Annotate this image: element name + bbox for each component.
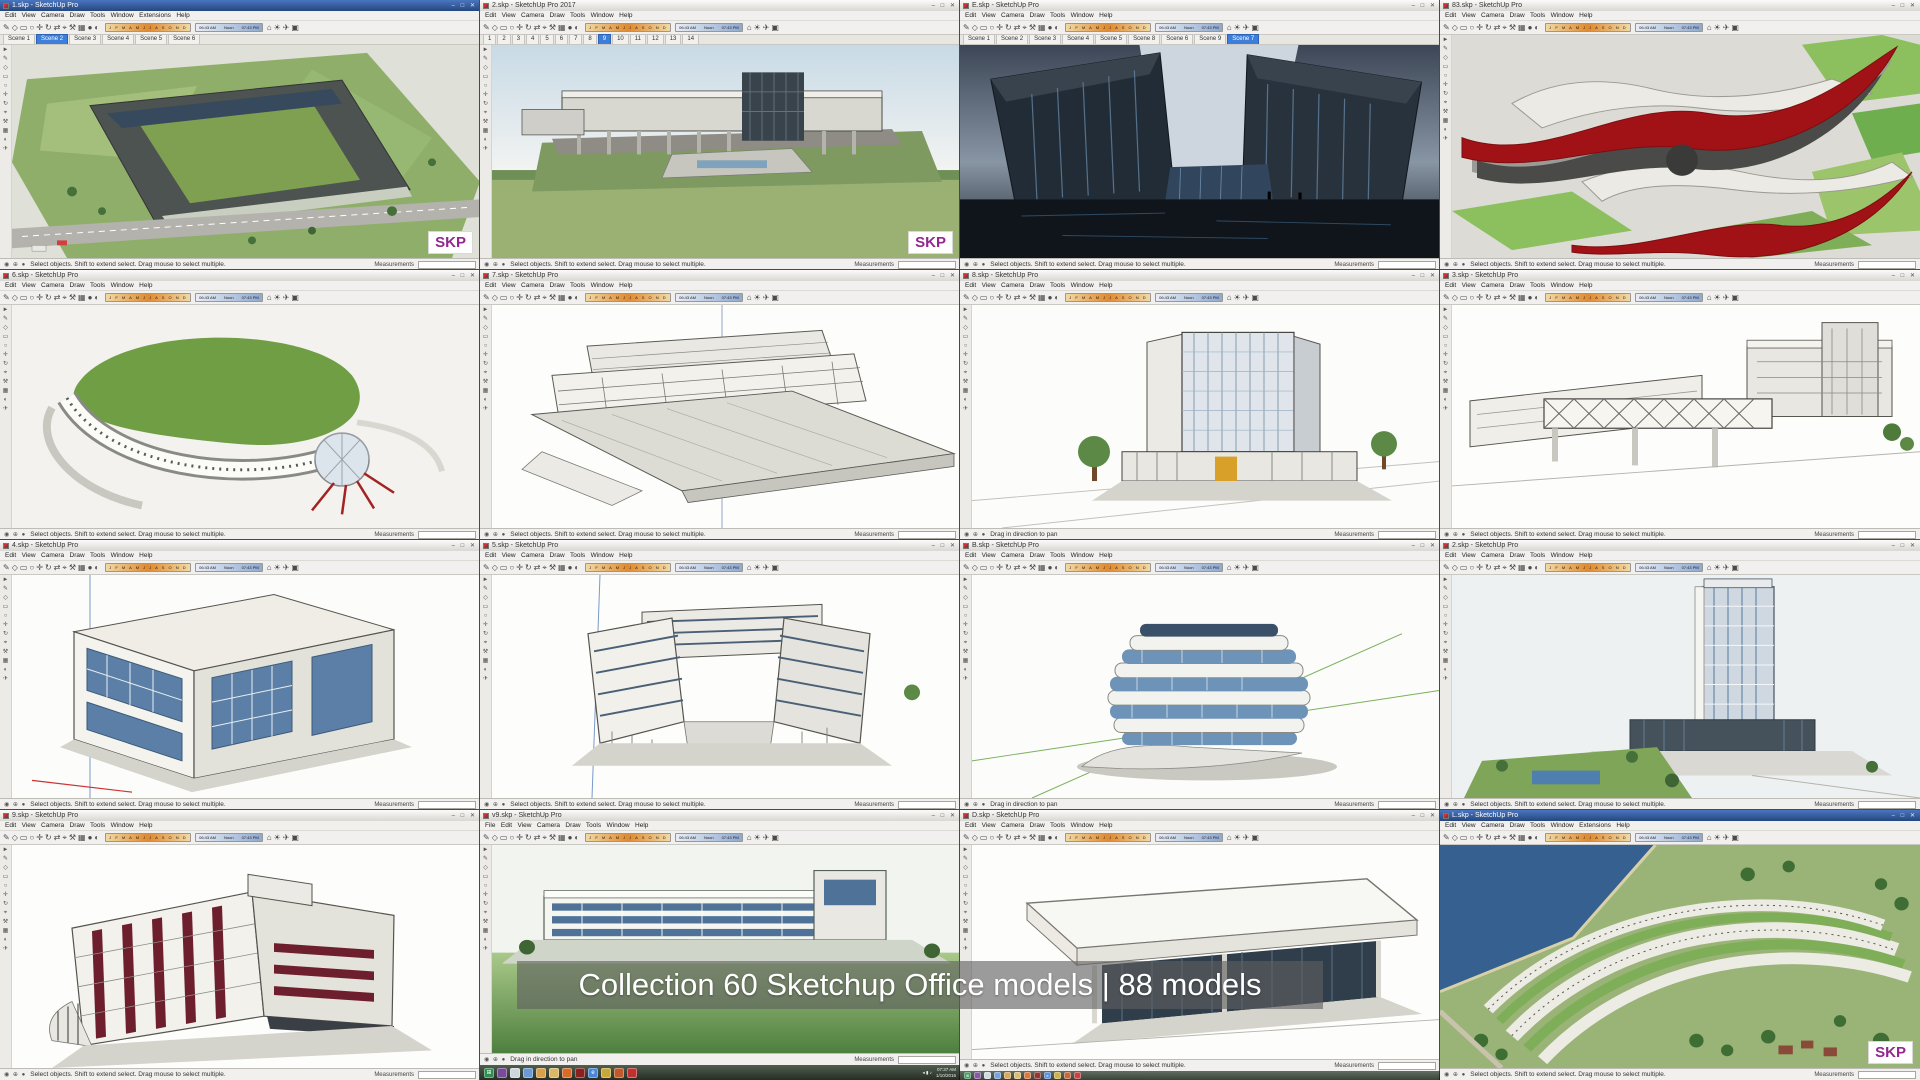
title-bar[interactable]: 83.skp - SketchUp Pro– □ ✕ xyxy=(1440,0,1920,11)
tab[interactable]: 7 xyxy=(569,34,582,44)
toolbar[interactable]: ✎◇▭○✛↻⇄⌖⚒▦●◐J F M A M J J A S O N D06:43… xyxy=(960,21,1440,35)
model-tower-podium[interactable] xyxy=(1452,575,1920,798)
sketchup-window-15: D.skp - SketchUp Pro– □ ✕ Edit View Came… xyxy=(960,810,1440,1080)
window-title: 83.skp - SketchUp Pro xyxy=(1452,2,1522,9)
toolbar-icons-right[interactable]: ⌂☀✈▣ xyxy=(267,833,301,842)
tool-palette[interactable]: ► ✎ ◇ ▭ ○ ✛ ↻ ⌖ ⚒ ▦ ◐ ✈ xyxy=(0,305,12,528)
toolbar-icons-right[interactable]: ⌂☀✈▣ xyxy=(1707,833,1741,842)
model-layered-slabs[interactable] xyxy=(492,305,960,528)
tab[interactable]: Scene 5 xyxy=(1095,34,1127,44)
window-controls[interactable]: – □ ✕ xyxy=(1892,542,1917,549)
toolbar-icons-right[interactable]: ⌂☀✈▣ xyxy=(747,563,781,572)
title-bar[interactable]: L.skp - SketchUp Pro– □ ✕ xyxy=(1440,810,1920,821)
toolbar-icons-right[interactable]: ⌂☀✈▣ xyxy=(747,23,781,32)
title-bar[interactable]: 2.skp - SketchUp Pro– □ ✕ xyxy=(1440,540,1920,551)
window-controls[interactable]: – □ ✕ xyxy=(1892,272,1917,279)
chrome-icon[interactable] xyxy=(1004,1072,1011,1079)
toolbar[interactable]: ✎◇▭○✛↻⇄⌖⚒▦●◐J F M A M J J A S O N D06:43… xyxy=(1440,561,1920,575)
title-bar[interactable]: 7.skp - SketchUp Pro– □ ✕ xyxy=(480,270,960,281)
tool-palette[interactable]: ► ✎ ◇ ▭ ○ ✛ ↻ ⌖ ⚒ ▦ ◐ ✈ xyxy=(1440,35,1452,258)
toolbar-icons-right[interactable]: ⌂☀✈▣ xyxy=(267,563,301,572)
tab[interactable]: 14 xyxy=(682,34,699,44)
tab[interactable]: 10 xyxy=(612,34,629,44)
viewport[interactable]: ► ✎ ◇ ▭ ○ ✛ ↻ ⌖ ⚒ ▦ ◐ ✈ xyxy=(1440,305,1920,528)
viewport[interactable]: ► ✎ ◇ ▭ ○ ✛ ↻ ⌖ ⚒ ▦ ◐ ✈ xyxy=(1440,575,1920,798)
toolbar[interactable]: ✎◇▭○✛↻⇄⌖⚒▦●◐J F M A M J J A S O N D06:43… xyxy=(0,21,480,35)
window-controls[interactable]: – □ ✕ xyxy=(932,542,957,549)
menu-bar[interactable]: Edit View Camera Draw Tools Window Help xyxy=(480,11,960,21)
window-title: E.skp - SketchUp Pro xyxy=(972,2,1039,9)
collection-caption: Collection 60 Sketchup Office models | 8… xyxy=(517,961,1323,1009)
toolbar-icons-right[interactable]: ⌂☀✈▣ xyxy=(267,293,301,302)
app-icon xyxy=(3,3,9,9)
shadow-time-slider[interactable]: 06:43 AMNoon07:43 PM xyxy=(195,563,263,572)
viewport[interactable]: ► ✎ ◇ ▭ ○ ✛ ↻ ⌖ ⚒ ▦ ◐ ✈ xyxy=(480,305,960,528)
shadow-time-slider[interactable]: 06:43 AMNoon07:43 PM xyxy=(1635,293,1703,302)
toolbar[interactable]: ✎◇▭○✛↻⇄⌖⚒▦●◐J F M A M J J A S O N D06:43… xyxy=(960,291,1440,305)
window-controls[interactable]: – □ ✕ xyxy=(452,2,477,9)
model-terraced-aerial[interactable] xyxy=(1440,845,1920,1068)
measurements-box[interactable] xyxy=(898,261,956,269)
window-controls[interactable]: – □ ✕ xyxy=(1412,2,1437,9)
status-icons[interactable]: ◉ ⊕ ● xyxy=(4,801,26,808)
model-blue-glass-block[interactable] xyxy=(12,575,480,798)
status-icons[interactable]: ◉ ⊕ ● xyxy=(964,801,986,808)
measurements-box[interactable] xyxy=(1378,801,1436,809)
title-bar[interactable]: 3.skp - SketchUp Pro– □ ✕ xyxy=(1440,270,1920,281)
tab[interactable]: 1 xyxy=(483,34,496,44)
viewport[interactable]: ► ✎ ◇ ▭ ○ ✛ ↻ ⌖ ⚒ ▦ ◐ ✈ xyxy=(0,845,480,1068)
model-glass-slab-podium[interactable] xyxy=(972,305,1440,528)
status-text: Select objects. Shift to extend select. … xyxy=(1470,531,1665,538)
measurements-label: Measurements xyxy=(1334,262,1374,268)
tab[interactable]: Scene 6 xyxy=(1161,34,1193,44)
toolbar[interactable]: ✎◇▭○✛↻⇄⌖⚒▦●◐J F M A M J J A S O N D06:43… xyxy=(0,831,480,845)
title-bar[interactable]: v9.skp - SketchUp Pro– □ ✕ xyxy=(480,810,960,821)
toolbar-icons-right[interactable]: ⌂☀✈▣ xyxy=(1227,833,1261,842)
tool-palette[interactable]: ► ✎ ◇ ▭ ○ ✛ ↻ ⌖ ⚒ ▦ ◐ ✈ xyxy=(960,845,972,1059)
toolbar-icons[interactable]: ✎◇▭○✛↻⇄⌖⚒▦●◐ xyxy=(483,293,581,303)
model-redstripe-building[interactable] xyxy=(12,845,480,1068)
toolbar[interactable]: ✎◇▭○✛↻⇄⌖⚒▦●◐J F M A M J J A S O N D06:43… xyxy=(1440,831,1920,845)
tool-palette[interactable]: ► ✎ ◇ ▭ ○ ✛ ↻ ⌖ ⚒ ▦ ◐ ✈ xyxy=(960,305,972,528)
tab[interactable]: 13 xyxy=(665,34,682,44)
tool-palette[interactable]: ► ✎ ◇ ▭ ○ ✛ ↻ ⌖ ⚒ ▦ ◐ ✈ xyxy=(480,305,492,528)
model-concrete-office[interactable] xyxy=(492,45,960,258)
status-text: Select objects. Shift to extend select. … xyxy=(510,261,705,268)
toolbar-icons[interactable]: ✎◇▭○✛↻⇄⌖⚒▦●◐ xyxy=(483,563,581,573)
tab[interactable]: Scene 2 xyxy=(996,34,1028,44)
app-icon xyxy=(963,543,969,549)
title-bar[interactable]: B.skp - SketchUp Pro– □ ✕ xyxy=(960,540,1440,551)
title-bar[interactable]: E.skp - SketchUp Pro– □ ✕ xyxy=(960,0,1440,11)
model-low-office[interactable] xyxy=(492,845,960,1053)
measurements-label: Measurements xyxy=(1334,1063,1374,1069)
status-bar: ◉ ⊕ ●Select objects. Shift to extend sel… xyxy=(1440,798,1920,810)
title-bar[interactable]: 5.skp - SketchUp Pro– □ ✕ xyxy=(480,540,960,551)
toolbar-icons-right[interactable]: ⌂☀✈▣ xyxy=(1707,563,1741,572)
toolbar-icons[interactable]: ✎◇▭○✛↻⇄⌖⚒▦●◐ xyxy=(1443,23,1541,33)
toolbar[interactable]: ✎◇▭○✛↻⇄⌖⚒▦●◐J F M A M J J A S O N D06:43… xyxy=(480,561,960,575)
status-icons[interactable]: ◉ ⊕ ● xyxy=(1444,531,1466,538)
status-icons[interactable]: ◉ ⊕ ● xyxy=(1444,801,1466,808)
status-icons[interactable]: ◉ ⊕ ● xyxy=(484,801,506,808)
app-icon xyxy=(1443,3,1449,9)
menu-bar[interactable]: Edit View Camera Draw Tools Window Help xyxy=(960,11,1440,21)
status-icons[interactable]: ◉ ⊕ ● xyxy=(1444,261,1466,268)
shadow-time-slider[interactable]: 06:43 AMNoon07:43 PM xyxy=(675,563,743,572)
status-icons[interactable]: ◉ ⊕ ● xyxy=(4,531,26,538)
shadow-time-slider[interactable]: 06:43 AMNoon07:43 PM xyxy=(675,293,743,302)
measurements-box[interactable] xyxy=(418,1071,476,1079)
shadow-time-slider[interactable]: 06:43 AMNoon07:43 PM xyxy=(1635,833,1703,842)
menu-bar[interactable]: Edit View Camera Draw Tools Window Help xyxy=(960,821,1440,831)
menu-bar[interactable]: Edit View Camera Draw Tools Window Help xyxy=(960,551,1440,561)
toolbar-icons-right[interactable]: ⌂☀✈▣ xyxy=(1227,293,1261,302)
office-icon[interactable] xyxy=(1054,1072,1061,1079)
toolbar[interactable]: ✎◇▭○✛↻⇄⌖⚒▦●◐J F M A M J J A S O N D06:43… xyxy=(0,561,480,575)
tab[interactable]: Scene 5 xyxy=(135,34,167,44)
tab[interactable]: Scene 4 xyxy=(1062,34,1094,44)
ie-icon[interactable]: e xyxy=(588,1068,598,1078)
window-controls[interactable]: – □ ✕ xyxy=(452,812,477,819)
tool-palette[interactable]: ► ✎ ◇ ▭ ○ ✛ ↻ ⌖ ⚒ ▦ ◐ ✈ xyxy=(480,45,492,258)
viewport[interactable] xyxy=(1440,845,1920,1068)
photoshop-icon[interactable] xyxy=(575,1068,585,1078)
tab[interactable]: Scene 6 xyxy=(168,34,200,44)
measurements-box[interactable] xyxy=(1858,1071,1916,1079)
title-bar[interactable]: 8.skp - SketchUp Pro– □ ✕ xyxy=(960,270,1440,281)
measurements-box[interactable] xyxy=(1858,531,1916,539)
status-text: Drag in direction to pan xyxy=(990,801,1057,808)
model-curved-tower[interactable] xyxy=(972,575,1440,798)
toolbar-icons[interactable]: ✎◇▭○✛↻⇄⌖⚒▦●◐ xyxy=(483,23,581,33)
shadow-date-slider[interactable]: J F M A M J J A S O N D xyxy=(105,23,191,32)
toolbar[interactable]: ✎◇▭○✛↻⇄⌖⚒▦●◐J F M A M J J A S O N D06:43… xyxy=(1440,291,1920,305)
status-bar: ◉ ⊕ ●Select objects. Shift to extend sel… xyxy=(0,258,480,270)
shadow-time-slider[interactable]: 06:43 AMNoon07:43 PM xyxy=(195,293,263,302)
window-controls[interactable]: – □ ✕ xyxy=(452,542,477,549)
viewport[interactable]: ► ✎ ◇ ▭ ○ ✛ ↻ ⌖ ⚒ ▦ ◐ ✈ xyxy=(960,845,1440,1059)
shadow-date-slider[interactable]: J F M A M J J A S O N D xyxy=(585,23,671,32)
app-icon xyxy=(3,543,9,549)
shadow-time-slider[interactable]: 06:43 AMNoon07:43 PM xyxy=(195,833,263,842)
viewport[interactable]: ► ✎ ◇ ▭ ○ ✛ ↻ ⌖ ⚒ ▦ ◐ ✈ xyxy=(0,575,480,798)
menu-bar[interactable]: Edit View Camera Draw Tools Window Help xyxy=(1440,281,1920,291)
firefox-icon[interactable] xyxy=(1024,1072,1031,1079)
window-controls[interactable]: – □ ✕ xyxy=(932,2,957,9)
shadow-time-slider[interactable]: 06:43 AMNoon07:43 PM xyxy=(1635,563,1703,572)
tab[interactable]: Scene 8 xyxy=(1128,34,1160,44)
toolbar-icons[interactable]: ✎◇▭○✛↻⇄⌖⚒▦●◐ xyxy=(3,563,101,573)
shadow-date-slider[interactable]: J F M A M J J A S O N D xyxy=(105,833,191,842)
measurements-box[interactable] xyxy=(1378,261,1436,269)
measurements-label: Measurements xyxy=(374,532,414,538)
status-bar: ◉ ⊕ ●Select objects. Shift to extend sel… xyxy=(1440,528,1920,540)
tool-palette[interactable]: ► ✎ ◇ ▭ ○ ✛ ↻ ⌖ ⚒ ▦ ◐ ✈ xyxy=(480,845,492,1053)
toolbar-icons[interactable]: ✎◇▭○✛↻⇄⌖⚒▦●◐ xyxy=(963,293,1061,303)
title-bar[interactable]: 2.skp - SketchUp Pro 2017– □ ✕ xyxy=(480,0,960,11)
model-ushape-slab[interactable] xyxy=(492,575,960,798)
shadow-date-slider[interactable]: J F M A M J J A S O N D xyxy=(585,293,671,302)
toolbar-icons[interactable]: ✎◇▭○✛↻⇄⌖⚒▦●◐ xyxy=(963,833,1061,843)
tab[interactable]: 5 xyxy=(540,34,553,44)
tab[interactable]: Scene 1 xyxy=(3,34,35,44)
measurements-label: Measurements xyxy=(1814,1072,1854,1078)
title-bar[interactable]: 1.skp - SketchUp Pro– □ ✕ xyxy=(0,0,480,11)
title-bar[interactable]: D.skp - SketchUp Pro– □ ✕ xyxy=(960,810,1440,821)
measurements-box[interactable] xyxy=(1378,531,1436,539)
viewport[interactable]: ► ✎ ◇ ▭ ○ ✛ ↻ ⌖ ⚒ ▦ ◐ ✈ xyxy=(480,575,960,798)
scene-tabs: Scene 1Scene 2Scene 3Scene 4Scene 5Scene… xyxy=(960,35,1440,45)
paint-icon[interactable] xyxy=(523,1068,533,1078)
viewport[interactable]: ► ✎ ◇ ▭ ○ ✛ ↻ ⌖ ⚒ ▦ ◐ ✈ xyxy=(480,845,960,1053)
toolbar-icons-right[interactable]: ⌂☀✈▣ xyxy=(1707,293,1741,302)
toolbar-icons[interactable]: ✎◇▭○✛↻⇄⌖⚒▦●◐ xyxy=(1443,833,1541,843)
toolbar[interactable]: ✎◇▭○✛↻⇄⌖⚒▦●◐J F M A M J J A S O N D06:43… xyxy=(1440,21,1920,35)
status-text: Select objects. Shift to extend select. … xyxy=(1470,261,1665,268)
tool-palette[interactable]: ► ✎ ◇ ▭ ○ ✛ ↻ ⌖ ⚒ ▦ ◐ ✈ xyxy=(1440,575,1452,798)
model-bridge-complex[interactable] xyxy=(1452,305,1920,528)
toolbar[interactable]: ✎◇▭○✛↻⇄⌖⚒▦●◐J F M A M J J A S O N D06:43… xyxy=(960,561,1440,575)
measurements-box[interactable] xyxy=(898,1056,956,1064)
shadow-time-slider[interactable]: 06:43 AMNoon07:43 PM xyxy=(675,833,743,842)
shadow-date-slider[interactable]: J F M A M J J A S O N D xyxy=(1545,293,1631,302)
menu-bar[interactable]: Edit View Camera Draw Tools Window Help xyxy=(1440,551,1920,561)
toolbar[interactable]: ✎◇▭○✛↻⇄⌖⚒▦●◐J F M A M J J A S O N D06:43… xyxy=(480,21,960,35)
paint-icon[interactable] xyxy=(994,1072,1001,1079)
menu-bar[interactable]: Edit View Camera Draw Tools Window Help xyxy=(960,281,1440,291)
tab[interactable]: 8 xyxy=(583,34,596,44)
tool-palette[interactable]: ► ✎ ◇ ▭ ○ ✛ ↻ ⌖ ⚒ ▦ ◐ ✈ xyxy=(480,575,492,798)
tab[interactable]: 6 xyxy=(555,34,568,44)
viewport[interactable]: ► ✎ ◇ ▭ ○ ✛ ↻ ⌖ ⚒ ▦ ◐ ✈ xyxy=(1440,35,1920,258)
status-icons[interactable]: ◉ ⊕ ● xyxy=(964,531,986,538)
app-icon xyxy=(483,3,489,9)
tab[interactable]: 11 xyxy=(630,34,646,44)
menu-bar[interactable]: Edit View Camera Draw Tools Window Help xyxy=(480,551,960,561)
status-text: Select objects. Shift to extend select. … xyxy=(1470,1071,1665,1078)
start-button[interactable]: ⊞ xyxy=(964,1072,971,1079)
viewport[interactable]: ► ✎ ◇ ▭ ○ ✛ ↻ ⌖ ⚒ ▦ ◐ ✈ xyxy=(0,305,480,528)
tab[interactable]: 4 xyxy=(526,34,539,44)
chrome-icon[interactable] xyxy=(536,1068,546,1078)
window-controls[interactable]: – □ ✕ xyxy=(932,812,957,819)
media-player-icon[interactable] xyxy=(974,1072,981,1079)
measurements-box[interactable] xyxy=(898,801,956,809)
tab[interactable]: Scene 4 xyxy=(102,34,134,44)
toolbar-icons-right[interactable]: ⌂☀✈▣ xyxy=(747,833,781,842)
window-controls[interactable]: – □ ✕ xyxy=(1412,542,1437,549)
window-controls[interactable]: – □ ✕ xyxy=(1412,812,1437,819)
status-icons[interactable]: ◉ ⊕ ● xyxy=(4,261,26,268)
window-title: D.skp - SketchUp Pro xyxy=(972,812,1039,819)
toolbar[interactable]: ✎◇▭○✛↻⇄⌖⚒▦●◐J F M A M J J A S O N D06:43… xyxy=(0,291,480,305)
tab[interactable]: 12 xyxy=(647,34,664,44)
tab[interactable]: Scene 2 xyxy=(36,34,68,44)
folder-icon[interactable] xyxy=(549,1068,559,1078)
status-bar: ◉ ⊕ ●Select objects. Shift to extend sel… xyxy=(0,798,480,810)
measurements-box[interactable] xyxy=(1378,1062,1436,1070)
tab[interactable]: 3 xyxy=(512,34,525,44)
shadow-date-slider[interactable]: J F M A M J J A S O N D xyxy=(1545,563,1631,572)
status-icons[interactable]: ◉ ⊕ ● xyxy=(484,1056,506,1063)
toolbar-icons[interactable]: ✎◇▭○✛↻⇄⌖⚒▦●◐ xyxy=(483,833,581,843)
toolbar-icons-right[interactable]: ⌂☀✈▣ xyxy=(1707,23,1741,32)
window-title: 6.skp - SketchUp Pro xyxy=(12,272,78,279)
shadow-time-slider[interactable]: 06:43 AMNoon07:43 PM xyxy=(1155,833,1223,842)
toolbar[interactable]: ✎◇▭○✛↻⇄⌖⚒▦●◐J F M A M J J A S O N D06:43… xyxy=(480,831,960,845)
shadow-time-slider[interactable]: 06:43 AMNoon07:43 PM xyxy=(195,23,263,32)
viewport[interactable] xyxy=(960,45,1440,258)
measurements-box[interactable] xyxy=(1858,801,1916,809)
shadow-date-slider[interactable]: J F M A M J J A S O N D xyxy=(1545,23,1631,32)
model-dark-towers[interactable] xyxy=(960,45,1440,258)
start-button[interactable]: ⊞ xyxy=(484,1068,494,1078)
window-controls[interactable]: – □ ✕ xyxy=(452,272,477,279)
tool-palette[interactable]: ► ✎ ◇ ▭ ○ ✛ ↻ ⌖ ⚒ ▦ ◐ ✈ xyxy=(0,575,12,798)
window-controls[interactable]: – □ ✕ xyxy=(932,272,957,279)
toolbar-icons[interactable]: ✎◇▭○✛↻⇄⌖⚒▦●◐ xyxy=(1443,293,1541,303)
shadow-date-slider[interactable]: J F M A M J J A S O N D xyxy=(105,293,191,302)
shadow-time-slider[interactable]: 06:43 AMNoon07:43 PM xyxy=(1635,23,1703,32)
window-title: L.skp - SketchUp Pro xyxy=(1452,812,1518,819)
window-controls[interactable]: – □ ✕ xyxy=(1892,812,1917,819)
shadow-date-slider[interactable]: J F M A M J J A S O N D xyxy=(1065,833,1151,842)
shadow-time-slider[interactable]: 06:43 AMNoon07:43 PM xyxy=(675,23,743,32)
viewport[interactable]: ► ✎ ◇ ▭ ○ ✛ ↻ ⌖ ⚒ ▦ ◐ ✈ xyxy=(0,45,480,258)
menu-bar[interactable]: Edit View Camera Draw Tools Window Help xyxy=(0,551,480,561)
screenshot-collage: 1.skp - SketchUp Pro– □ ✕ Edit View Came… xyxy=(0,0,1920,1080)
status-icons[interactable]: ◉ ⊕ ● xyxy=(964,261,986,268)
toolbar-icons-right[interactable]: ⌂☀✈▣ xyxy=(1227,563,1261,572)
tab[interactable]: 9 xyxy=(598,34,611,44)
powerpoint-icon[interactable] xyxy=(614,1068,624,1078)
shadow-date-slider[interactable]: J F M A M J J A S O N D xyxy=(1065,293,1151,302)
notepad-icon[interactable] xyxy=(510,1068,520,1078)
menu-bar[interactable]: Edit View Camera Draw Tools Window Exten… xyxy=(0,11,480,21)
toolbar-icons[interactable]: ✎◇▭○✛↻⇄⌖⚒▦●◐ xyxy=(1443,563,1541,573)
shadow-time-slider[interactable]: 06:43 AMNoon07:43 PM xyxy=(1155,293,1223,302)
toolbar-icons-right[interactable]: ⌂☀✈▣ xyxy=(747,293,781,302)
tray-clock[interactable]: 07:37 AM1/10/2016 xyxy=(936,1067,956,1077)
folder-icon[interactable] xyxy=(1014,1072,1021,1079)
tool-palette[interactable]: ► ✎ ◇ ▭ ○ ✛ ↻ ⌖ ⚒ ▦ ◐ ✈ xyxy=(0,45,12,258)
viewport[interactable]: ► ✎ ◇ ▭ ○ ✛ ↻ ⌖ ⚒ ▦ ◐ ✈ xyxy=(960,305,1440,528)
tool-palette[interactable]: ► ✎ ◇ ▭ ○ ✛ ↻ ⌖ ⚒ ▦ ◐ ✈ xyxy=(0,845,12,1068)
window-controls[interactable]: – □ ✕ xyxy=(1412,272,1437,279)
sketchup-window-3: E.skp - SketchUp Pro– □ ✕ Edit View Came… xyxy=(960,0,1440,270)
shadow-date-slider[interactable]: J F M A M J J A S O N D xyxy=(105,563,191,572)
model-red-ribbons[interactable] xyxy=(1452,35,1920,258)
pdf-icon[interactable] xyxy=(627,1068,637,1078)
powerpoint-icon[interactable] xyxy=(1064,1072,1071,1079)
firefox-icon[interactable] xyxy=(562,1068,572,1078)
tool-palette[interactable]: ► ✎ ◇ ▭ ○ ✛ ↻ ⌖ ⚒ ▦ ◐ ✈ xyxy=(960,575,972,798)
status-icons[interactable]: ◉ ⊕ ● xyxy=(484,261,506,268)
model-flat-roof-hall[interactable] xyxy=(972,845,1440,1059)
ie-icon[interactable]: e xyxy=(1044,1072,1051,1079)
sketchup-window-5: 6.skp - SketchUp Pro– □ ✕ Edit View Came… xyxy=(0,270,480,540)
menu-bar[interactable]: File Edit View Camera Draw Tools Window … xyxy=(480,821,960,831)
system-tray[interactable]: ◂ ▮ ♪07:37 AM1/10/2016 xyxy=(922,1067,956,1077)
office-icon[interactable] xyxy=(601,1068,611,1078)
tool-palette[interactable]: ► ✎ ◇ ▭ ○ ✛ ↻ ⌖ ⚒ ▦ ◐ ✈ xyxy=(1440,305,1452,528)
tab[interactable]: Scene 7 xyxy=(1227,34,1259,44)
measurements-box[interactable] xyxy=(418,261,476,269)
title-bar[interactable]: 4.skp - SketchUp Pro– □ ✕ xyxy=(0,540,480,551)
measurements-box[interactable] xyxy=(898,531,956,539)
pdf-icon[interactable] xyxy=(1074,1072,1081,1079)
toolbar-icons-right[interactable]: ⌂☀✈▣ xyxy=(267,23,301,32)
tab[interactable]: Scene 1 xyxy=(963,34,995,44)
window-title: 1.skp - SketchUp Pro xyxy=(12,2,78,9)
window-controls[interactable]: – □ ✕ xyxy=(1892,2,1917,9)
menu-bar[interactable]: Edit View Camera Draw Tools Window Help xyxy=(1440,11,1920,21)
model-crescent-dome[interactable] xyxy=(12,305,480,528)
viewport[interactable]: ► ✎ ◇ ▭ ○ ✛ ↻ ⌖ ⚒ ▦ ◐ ✈ xyxy=(960,575,1440,798)
window-title: 8.skp - SketchUp Pro xyxy=(972,272,1038,279)
tab[interactable]: Scene 9 xyxy=(1194,34,1226,44)
model-aerial-courtyard[interactable] xyxy=(12,45,480,258)
menu-bar[interactable]: Edit View Camera Draw Tools Window Exten… xyxy=(1440,821,1920,831)
toolbar-icons[interactable]: ✎◇▭○✛↻⇄⌖⚒▦●◐ xyxy=(963,23,1061,33)
status-icons[interactable]: ◉ ⊕ ● xyxy=(4,1071,26,1078)
measurements-box[interactable] xyxy=(418,801,476,809)
photoshop-icon[interactable] xyxy=(1034,1072,1041,1079)
sketchup-window-12: 2.skp - SketchUp Pro– □ ✕ Edit View Came… xyxy=(1440,540,1920,810)
notepad-icon[interactable] xyxy=(984,1072,991,1079)
measurements-label: Measurements xyxy=(374,1072,414,1078)
title-bar[interactable]: 9.skp - SketchUp Pro– □ ✕ xyxy=(0,810,480,821)
status-bar: ◉ ⊕ ●Drag in direction to panMeasurement… xyxy=(480,1053,960,1065)
tab[interactable]: Scene 3 xyxy=(69,34,101,44)
shadow-date-slider[interactable]: J F M A M J J A S O N D xyxy=(1065,563,1151,572)
window-title: B.skp - SketchUp Pro xyxy=(972,542,1039,549)
status-icons[interactable]: ◉ ⊕ ● xyxy=(484,531,506,538)
shadow-date-slider[interactable]: J F M A M J J A S O N D xyxy=(585,563,671,572)
menu-bar[interactable]: Edit View Camera Draw Tools Window Help xyxy=(0,281,480,291)
toolbar-icons[interactable]: ✎◇▭○✛↻⇄⌖⚒▦●◐ xyxy=(3,23,101,33)
shadow-date-slider[interactable]: J F M A M J J A S O N D xyxy=(1545,833,1631,842)
status-icons[interactable]: ◉ ⊕ ● xyxy=(964,1062,986,1069)
shadow-time-slider[interactable]: 06:43 AMNoon07:43 PM xyxy=(1155,23,1223,32)
title-bar[interactable]: 6.skp - SketchUp Pro– □ ✕ xyxy=(0,270,480,281)
menu-bar[interactable]: Edit View Camera Draw Tools Window Help xyxy=(480,281,960,291)
measurements-box[interactable] xyxy=(418,531,476,539)
toolbar[interactable]: ✎◇▭○✛↻⇄⌖⚒▦●◐J F M A M J J A S O N D06:43… xyxy=(960,831,1440,845)
status-icons[interactable]: ◉ ⊕ ● xyxy=(1444,1071,1466,1078)
toolbar-icons[interactable]: ✎◇▭○✛↻⇄⌖⚒▦●◐ xyxy=(963,563,1061,573)
menu-bar[interactable]: Edit View Camera Draw Tools Window Help xyxy=(0,821,480,831)
tray-icons[interactable]: ◂ ▮ ♪ xyxy=(922,1070,932,1076)
viewport[interactable]: ► ✎ ◇ ▭ ○ ✛ ↻ ⌖ ⚒ ▦ ◐ ✈ xyxy=(480,45,960,258)
shadow-time-slider[interactable]: 06:43 AMNoon07:43 PM xyxy=(1155,563,1223,572)
toolbar-icons[interactable]: ✎◇▭○✛↻⇄⌖⚒▦●◐ xyxy=(3,293,101,303)
measurements-label: Measurements xyxy=(374,802,414,808)
tab[interactable]: Scene 3 xyxy=(1029,34,1061,44)
shadow-date-slider[interactable]: J F M A M J J A S O N D xyxy=(585,833,671,842)
toolbar-icons-right[interactable]: ⌂☀✈▣ xyxy=(1227,23,1261,32)
window-title: v9.skp - SketchUp Pro xyxy=(492,812,562,819)
app-icon xyxy=(483,813,489,819)
shadow-date-slider[interactable]: J F M A M J J A S O N D xyxy=(1065,23,1151,32)
toolbar-icons[interactable]: ✎◇▭○✛↻⇄⌖⚒▦●◐ xyxy=(3,833,101,843)
tab[interactable]: 2 xyxy=(497,34,510,44)
media-player-icon[interactable] xyxy=(497,1068,507,1078)
measurements-box[interactable] xyxy=(1858,261,1916,269)
toolbar[interactable]: ✎◇▭○✛↻⇄⌖⚒▦●◐J F M A M J J A S O N D06:43… xyxy=(480,291,960,305)
